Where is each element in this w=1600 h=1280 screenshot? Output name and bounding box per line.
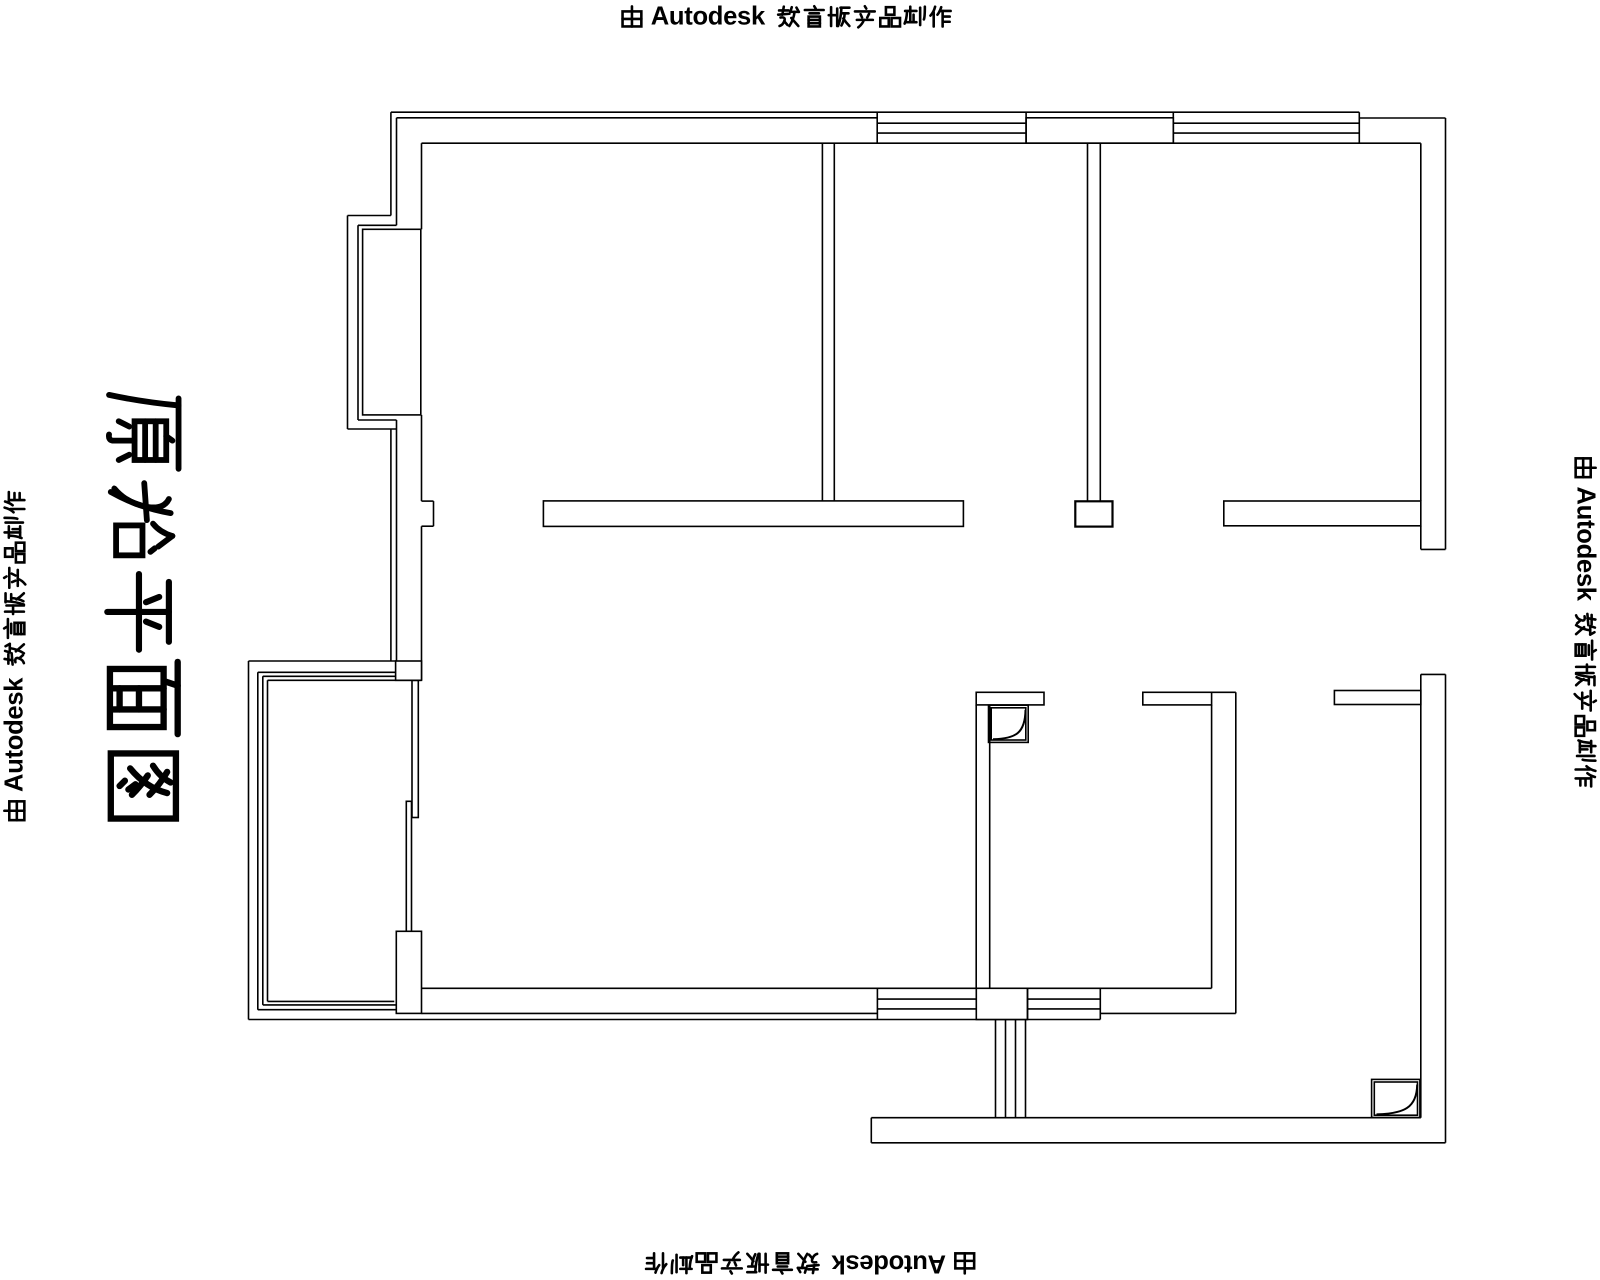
svg-text:Autodesk: Autodesk (651, 3, 766, 31)
svg-text:Autodesk: Autodesk (1572, 487, 1600, 602)
svg-text:Autodesk: Autodesk (0, 677, 28, 792)
svg-text:Autodesk: Autodesk (831, 1249, 946, 1277)
